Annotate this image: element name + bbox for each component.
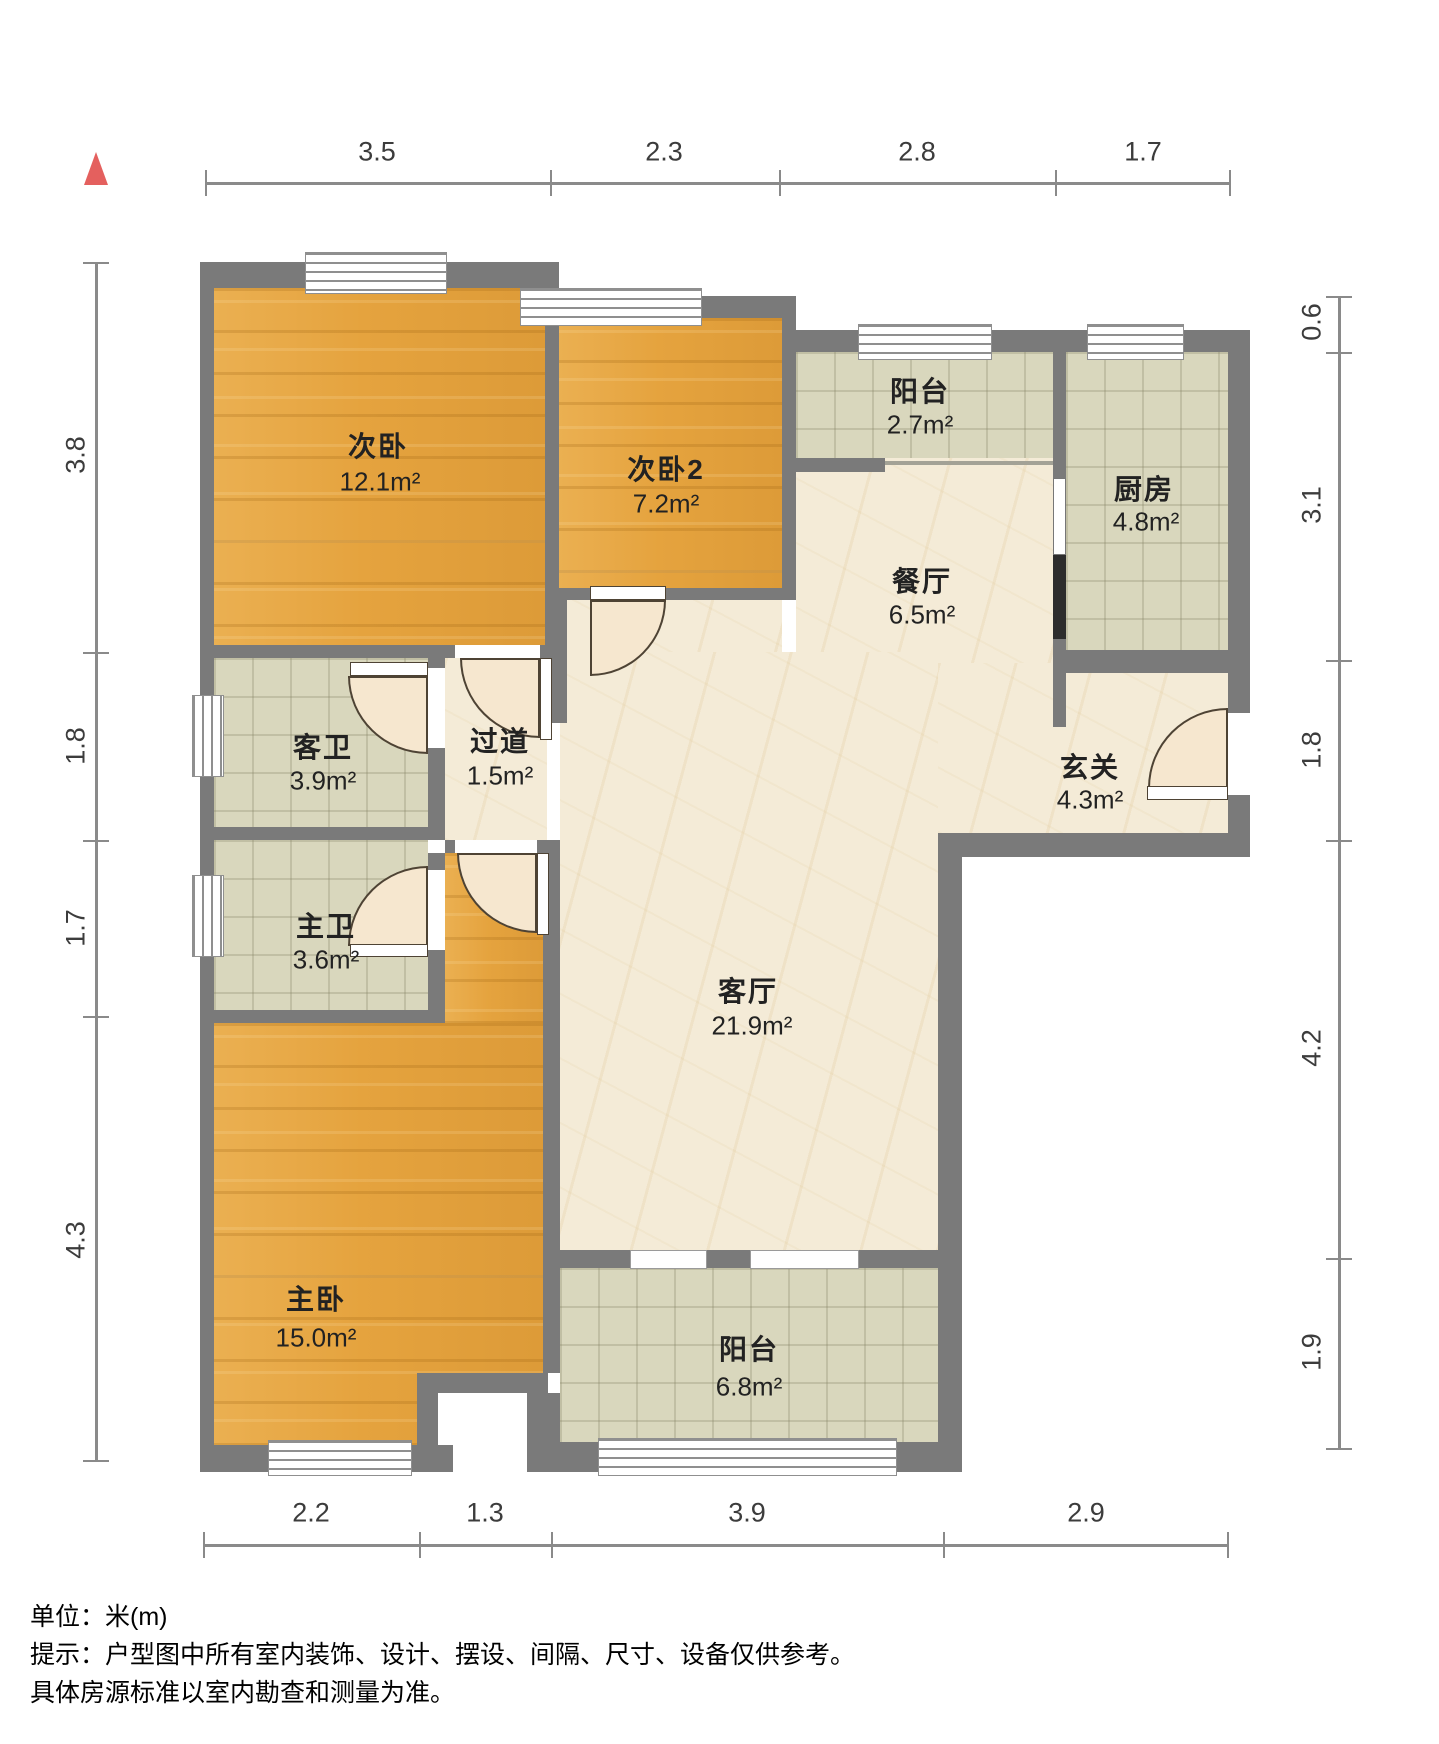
dim-bottom-0: 2.2 [292, 1498, 330, 1529]
door-corridor-leaf [537, 853, 549, 935]
window-living-balcony-1 [630, 1250, 707, 1269]
wall [782, 296, 796, 600]
wall [782, 458, 885, 472]
tick [1229, 170, 1231, 196]
dimension-line-right [1338, 296, 1341, 1448]
dimension-line-bottom [203, 1544, 1229, 1547]
door-bedroom-3-leaf [590, 586, 666, 600]
window-living-balcony-2 [750, 1250, 859, 1269]
wall [428, 950, 445, 1016]
tick [1326, 296, 1352, 298]
tick [551, 1532, 553, 1558]
kitchen-sliding-door-track [1053, 555, 1066, 639]
wall [445, 840, 455, 853]
room-label-bedroom-3: 次卧2 [627, 448, 705, 488]
tick [1055, 170, 1057, 196]
window-master-bedroom [268, 1440, 412, 1476]
dimension-line-top [205, 182, 1231, 185]
room-area-master-bathroom: 3.6m² [293, 945, 359, 976]
room-area-master-bedroom: 15.0m² [276, 1323, 357, 1354]
room-area-bedroom-3: 7.2m² [633, 489, 699, 520]
room-area-foyer: 4.3m² [1057, 785, 1123, 816]
dim-left-0: 3.8 [61, 436, 92, 474]
dim-bottom-2: 3.9 [728, 1498, 766, 1529]
dim-right-1: 3.1 [1297, 486, 1328, 524]
window-bedroom-3 [520, 288, 702, 326]
north-arrow-icon [84, 152, 108, 185]
room-label-living-room: 客厅 [718, 970, 778, 1010]
window-balcony-bottom [598, 1438, 897, 1476]
room-label-bedroom-2: 次卧 [348, 425, 408, 465]
wall [428, 645, 445, 668]
tick [419, 1532, 421, 1558]
footer-note-line1: 提示：户型图中所有室内装饰、设计、摆设、间隔、尺寸、设备仅供参考。 [30, 1636, 855, 1674]
tick [1326, 1258, 1352, 1260]
wall [200, 827, 445, 840]
footer-notes: 单位：米(m) 提示：户型图中所有室内装饰、设计、摆设、间隔、尺寸、设备仅供参考… [30, 1598, 855, 1712]
wall [417, 1373, 548, 1393]
window-master-bathroom [192, 875, 224, 957]
wall [200, 262, 214, 1472]
tick [83, 262, 109, 264]
wall [938, 833, 962, 1472]
footer-unit-line: 单位：米(m) [30, 1598, 855, 1636]
dim-right-0: 0.6 [1297, 303, 1328, 341]
room-area-balcony-bottom: 6.8m² [716, 1372, 782, 1403]
dimension-line-left [95, 262, 98, 1462]
room-label-guest-bathroom: 客卫 [293, 726, 353, 766]
room-label-balcony-top: 阳台 [890, 370, 950, 410]
dim-left-2: 1.7 [61, 909, 92, 947]
dim-bottom-3: 2.9 [1067, 1498, 1105, 1529]
wall [1228, 330, 1250, 713]
dim-left-3: 4.3 [61, 1221, 92, 1259]
window-kitchen [1087, 324, 1184, 360]
tick [1326, 1448, 1352, 1450]
room-area-hallway: 1.5m² [467, 761, 533, 792]
room-label-master-bathroom: 主卫 [296, 905, 356, 945]
wall [200, 645, 455, 658]
tick [1227, 1532, 1229, 1558]
dim-right-4: 1.9 [1297, 1333, 1328, 1371]
room-label-dining-room: 餐厅 [892, 560, 952, 600]
wall [951, 833, 1250, 857]
door-guest-bathroom-leaf [350, 662, 428, 676]
room-label-balcony-bottom: 阳台 [719, 1328, 779, 1368]
dim-left-1: 1.8 [61, 727, 92, 765]
room-label-hallway: 过道 [470, 720, 530, 760]
floor-living-room [560, 652, 938, 1253]
tick [779, 170, 781, 196]
room-label-master-bedroom: 主卧 [286, 1278, 346, 1318]
room-area-balcony-top: 2.7m² [887, 410, 953, 441]
room-area-kitchen: 4.8m² [1113, 507, 1179, 538]
tick [1326, 660, 1352, 662]
tick [1326, 840, 1352, 842]
dim-top-0: 3.5 [358, 137, 396, 168]
tick [83, 840, 109, 842]
floor-change-line [885, 461, 1053, 465]
dim-top-2: 2.8 [898, 137, 936, 168]
room-label-kitchen: 厨房 [1114, 468, 1174, 508]
kitchen-sliding-door [1053, 478, 1066, 555]
dim-top-3: 1.7 [1124, 137, 1162, 168]
door-entrance-leaf [1147, 786, 1228, 800]
window-balcony-top [858, 324, 992, 360]
wall [428, 853, 445, 870]
door-master-bathroom-leaf [350, 944, 428, 957]
room-label-foyer: 玄关 [1060, 746, 1120, 786]
dim-top-1: 2.3 [645, 137, 683, 168]
tick [83, 1016, 109, 1018]
room-area-living-room: 21.9m² [712, 1011, 793, 1042]
footer-note-line2: 具体房源标准以室内勘查和测量为准。 [30, 1674, 855, 1712]
tick [83, 1460, 109, 1462]
window-guest-bathroom [192, 695, 224, 777]
room-area-bedroom-2: 12.1m² [340, 467, 421, 498]
wall [200, 1010, 445, 1023]
room-area-guest-bathroom: 3.9m² [290, 766, 356, 797]
tick [203, 1532, 205, 1558]
dim-right-3: 4.2 [1297, 1029, 1328, 1067]
tick [1326, 352, 1352, 354]
wall [1053, 352, 1066, 478]
tick [550, 170, 552, 196]
tick [205, 170, 207, 196]
wall [1053, 650, 1250, 673]
dim-right-2: 1.8 [1297, 731, 1328, 769]
wall [417, 1393, 438, 1472]
door-bedroom-2-leaf [540, 658, 552, 740]
wall [665, 588, 796, 600]
window-bedroom-2 [305, 252, 447, 294]
wall [556, 1250, 940, 1268]
tick [83, 652, 109, 654]
room-area-dining-room: 6.5m² [889, 600, 955, 631]
dim-bottom-1: 1.3 [466, 1498, 504, 1529]
tick [943, 1532, 945, 1558]
floor-plan-page: 次卧 12.1m² 次卧2 7.2m² 阳台 2.7m² 厨房 4.8m² 餐厅… [0, 0, 1439, 1744]
